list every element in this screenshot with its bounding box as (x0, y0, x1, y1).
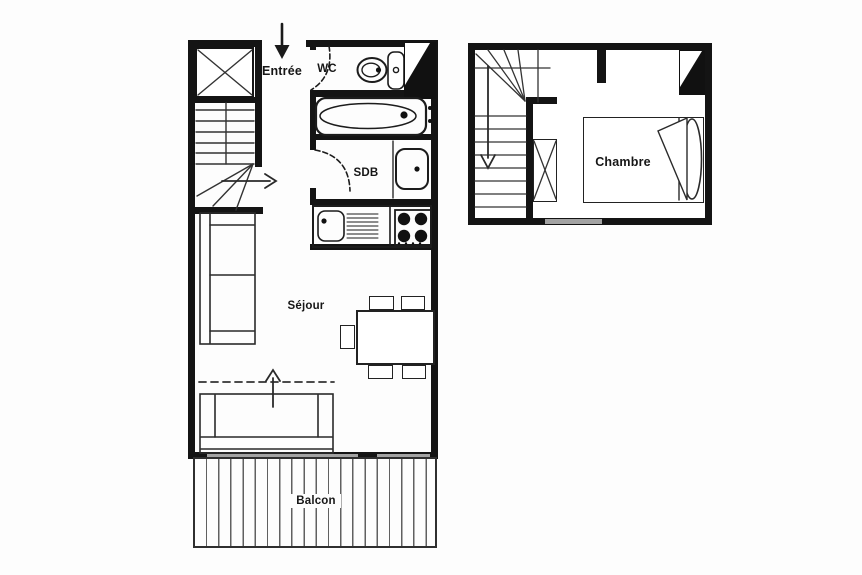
plan-linework (0, 0, 862, 575)
blanket-fold (658, 118, 687, 200)
washbasin-icon (393, 141, 428, 198)
corner-duct-main (404, 42, 436, 99)
stairs-upper (475, 50, 550, 207)
stairs-main (196, 103, 254, 210)
floor-plan-canvas: Entrée WC SDB Séjour Balcon Chambre (0, 0, 862, 575)
entrance-arrow-icon (275, 24, 290, 59)
room-label-wc: WC (312, 62, 342, 76)
kitchen-sink-icon (313, 206, 431, 247)
stove-icon (395, 210, 431, 245)
couch-left (200, 213, 255, 344)
stair-down-arrow-upper (481, 66, 495, 168)
wardrobe-x-icon (534, 141, 556, 199)
room-label-sdb: SDB (350, 166, 382, 180)
sofa-arrow-icon (266, 370, 280, 407)
room-label-entree: Entrée (256, 64, 308, 78)
room-label-balcon: Balcon (278, 494, 354, 508)
room-label-chambre: Chambre (585, 155, 661, 169)
closet-x-icon (198, 50, 252, 95)
sdb-door-arc (315, 150, 350, 191)
sofa-bottom (200, 394, 333, 453)
toilet-icon (358, 52, 405, 89)
bathtub-icon (316, 98, 432, 135)
bed-details (658, 118, 702, 200)
room-label-sejour: Séjour (276, 299, 336, 313)
corner-duct-upper (679, 50, 705, 95)
